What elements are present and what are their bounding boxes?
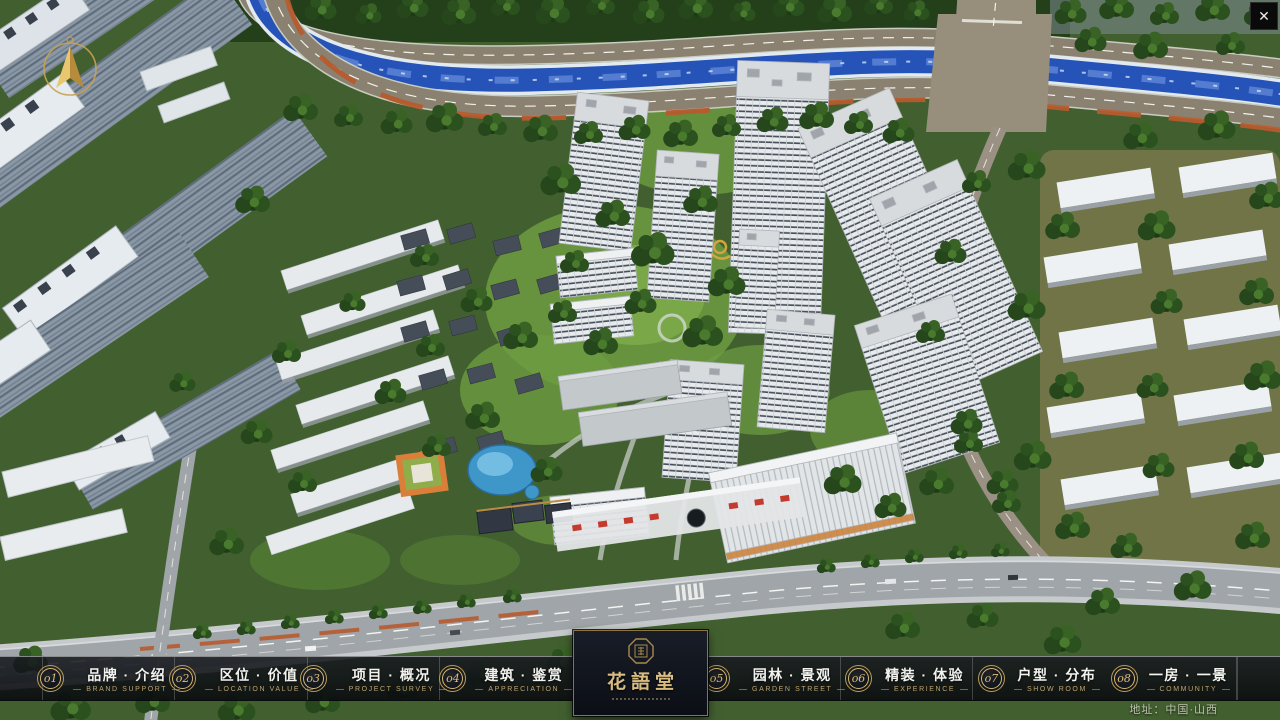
nav-label-en: APPRECIATION — [475, 686, 572, 693]
nav-badge-icon: o6 — [845, 665, 872, 692]
nav-item-brand-intro[interactable]: o1 品牌 · 介绍 BRAND SUPPORT — [43, 657, 175, 700]
nav-label-en: SHOW ROOM — [1014, 686, 1100, 693]
nav-item-project-survey[interactable]: o3 项目 · 概况 PROJECT SURVEY — [308, 657, 440, 700]
nav-label-en: PROJECT SURVEY — [336, 686, 448, 693]
nav-label-zh: 建筑 · 鉴赏 — [484, 665, 563, 685]
nav-label-zh: 区位 · 价值 — [220, 665, 299, 685]
nav-label-en: LOCATION VALUE — [205, 686, 313, 693]
nav-label-en: BRAND SUPPORT — [73, 686, 180, 693]
logo-subtext-line — [612, 698, 670, 700]
nav-item-room-view[interactable]: o8 一房 · 一景 COMMUNITY — [1105, 657, 1237, 700]
nav-badge-icon: o3 — [300, 665, 327, 692]
nav-label-en: GARDEN STREET — [739, 686, 845, 693]
nav-label-zh: 项目 · 概况 — [352, 665, 431, 685]
nav-label-zh: 户型 · 分布 — [1017, 665, 1096, 685]
north-intersection — [926, 0, 1052, 132]
nav-badge-icon: o1 — [37, 665, 64, 692]
nav-badge-icon: o7 — [978, 665, 1005, 692]
nav-label-zh: 园林 · 景观 — [753, 665, 832, 685]
nav-badge-icon: o2 — [169, 665, 196, 692]
logo-seal-icon — [628, 638, 654, 664]
nav-label-zh: 精装 · 体验 — [885, 665, 964, 685]
nav-label-zh: 一房 · 一景 — [1149, 665, 1228, 685]
nav-badge-icon: o4 — [439, 665, 466, 692]
project-logo-title: 花語堂 — [602, 667, 679, 694]
masterplan-app-window: ✕ o1 品牌 · 介绍 BRAND SUPPORT o2 区位 · 价值 LO… — [0, 0, 1280, 720]
nav-item-garden-landscape[interactable]: o5 园林 · 景观 GARDEN STREET — [709, 657, 841, 700]
bar-edge-right — [1237, 657, 1280, 700]
masterplan-render — [0, 0, 1280, 720]
close-button[interactable]: ✕ — [1250, 2, 1278, 30]
kindergarten — [395, 449, 448, 497]
nav-label-en: EXPERIENCE — [881, 686, 968, 693]
nav-item-architecture[interactable]: o4 建筑 · 鉴赏 APPRECIATION — [440, 657, 572, 700]
nav-label-zh: 品牌 · 介绍 — [87, 665, 166, 685]
nav-badge-icon: o8 — [1111, 665, 1138, 692]
nav-item-unit-distribution[interactable]: o7 户型 · 分布 SHOW ROOM — [973, 657, 1104, 700]
nav-label-en: COMMUNITY — [1147, 686, 1231, 693]
nav-item-decor-experience[interactable]: o6 精装 · 体验 EXPERIENCE — [841, 657, 973, 700]
project-logo-panel[interactable]: 花語堂 — [573, 630, 708, 716]
nav-item-location-value[interactable]: o2 区位 · 价值 LOCATION VALUE — [175, 657, 307, 700]
project-address: 地址：中国·山西 — [1129, 701, 1218, 717]
